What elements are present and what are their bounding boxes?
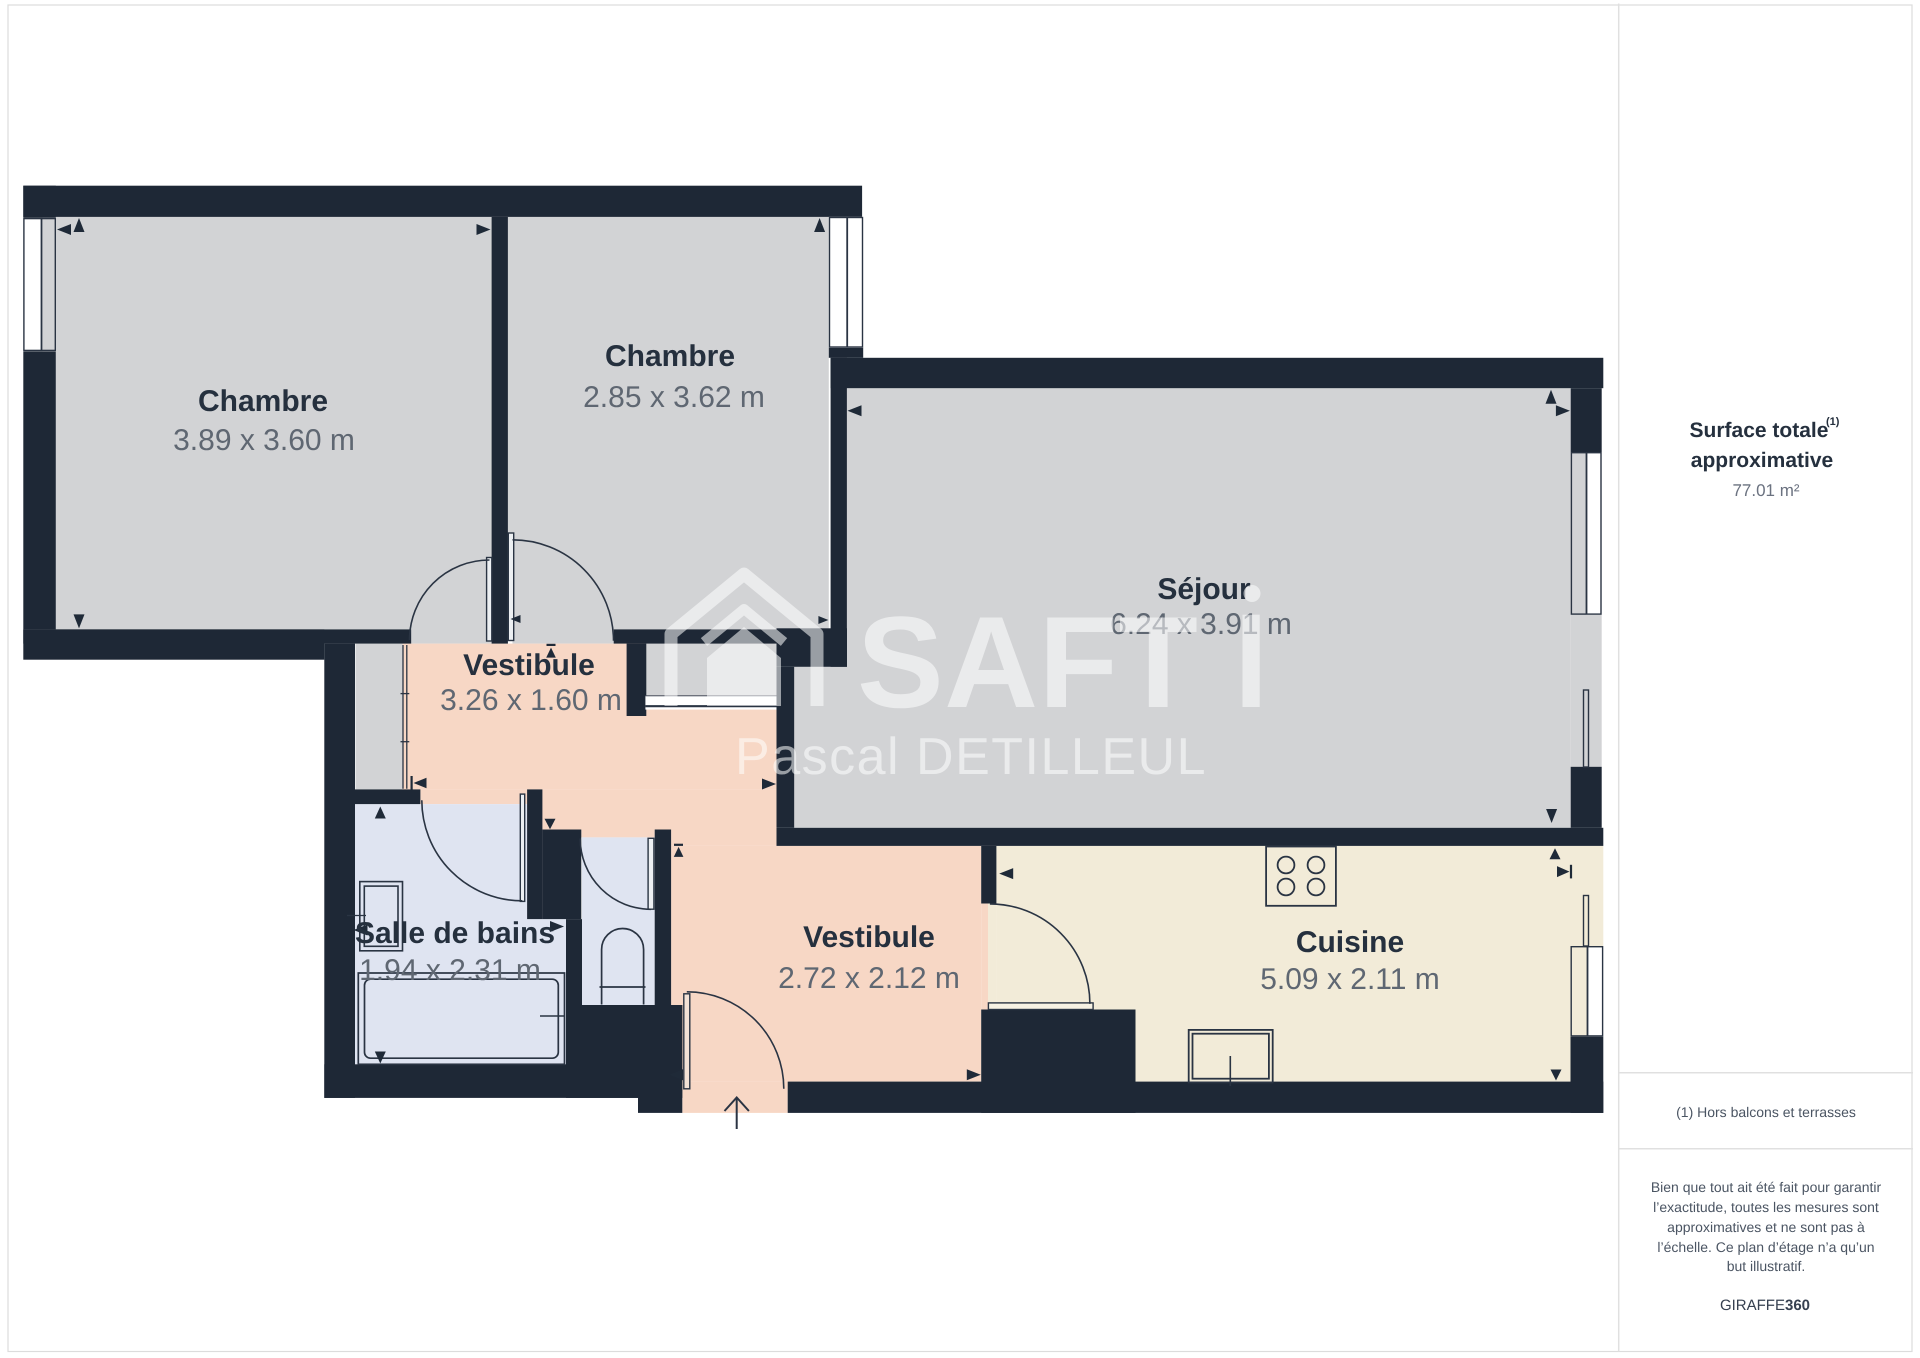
svg-text:but illustratif.: but illustratif. <box>1727 1258 1806 1274</box>
svg-text:77.01 m²: 77.01 m² <box>1732 481 1799 500</box>
svg-text:Vestibule: Vestibule <box>463 649 595 682</box>
svg-text:2.85 x 3.62 m: 2.85 x 3.62 m <box>583 381 765 414</box>
svg-text:approximatives et ne sont pas: approximatives et ne sont pas à <box>1667 1219 1865 1235</box>
svg-text:Pascal DETILLEUL: Pascal DETILLEUL <box>735 728 1207 786</box>
svg-text:(1) Hors balcons et terrasses: (1) Hors balcons et terrasses <box>1676 1104 1856 1120</box>
svg-text:5.09 x 2.11 m: 5.09 x 2.11 m <box>1260 963 1440 996</box>
svg-text:Chambre: Chambre <box>605 340 735 373</box>
svg-text:Surface totale: Surface totale <box>1690 419 1829 442</box>
svg-text:l’échelle. Ce plan d’étage n’a: l’échelle. Ce plan d’étage n’a qu’un <box>1657 1239 1874 1255</box>
svg-text:l’exactitude, toutes les mesur: l’exactitude, toutes les mesures sont <box>1653 1199 1879 1215</box>
svg-text:approximative: approximative <box>1691 449 1833 472</box>
svg-text:GIRAFFE360: GIRAFFE360 <box>1720 1297 1810 1314</box>
svg-text:3.26 x 1.60 m: 3.26 x 1.60 m <box>440 684 622 717</box>
svg-text:Cuisine: Cuisine <box>1296 926 1404 959</box>
svg-text:(1): (1) <box>1826 416 1840 428</box>
svg-text:Salle de bains: Salle de bains <box>355 917 555 950</box>
svg-text:2.72 x 2.12 m: 2.72 x 2.12 m <box>778 962 960 995</box>
svg-text:3.89 x 3.60 m: 3.89 x 3.60 m <box>173 424 355 457</box>
svg-text:Bien que tout ait été fait pou: Bien que tout ait été fait pour garantir <box>1651 1179 1882 1195</box>
svg-text:Vestibule: Vestibule <box>803 921 935 954</box>
svg-text:SAFT: SAFT <box>857 589 1198 735</box>
svg-text:1.94 x 2.31 m: 1.94 x 2.31 m <box>359 954 541 987</box>
svg-text:Chambre: Chambre <box>198 385 328 418</box>
